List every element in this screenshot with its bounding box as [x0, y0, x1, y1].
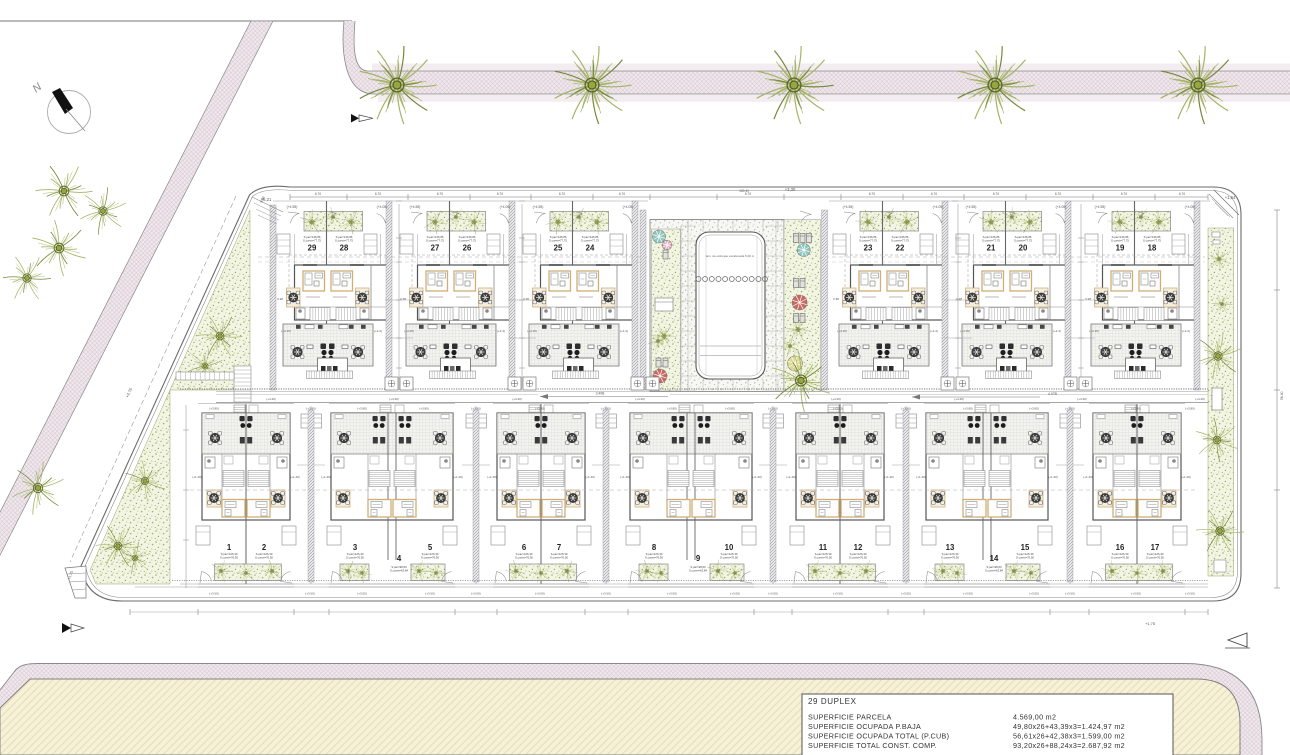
svg-text:6.70: 6.70 — [619, 192, 625, 196]
svg-text:(+3.80): (+3.80) — [963, 407, 973, 411]
svg-text:+1,75: +1,75 — [1145, 621, 1156, 626]
svg-text:(+4.15): (+4.15) — [404, 329, 414, 333]
svg-text:(+3.80): (+3.80) — [419, 407, 429, 411]
svg-text:(+3.00): (+3.00) — [209, 592, 219, 596]
svg-text:6.70: 6.70 — [993, 192, 999, 196]
svg-text:(+3.80): (+3.80) — [471, 407, 481, 411]
svg-text:S.const=76,50: S.const=76,50 — [1016, 555, 1034, 559]
svg-text:S.const=77,75: S.const=77,75 — [859, 238, 877, 242]
svg-text:(+1.40): (+1.40) — [290, 475, 300, 479]
svg-text:(+4.05): (+4.05) — [623, 205, 634, 209]
svg-text:10: 10 — [725, 543, 734, 552]
svg-text:4.569,00 m2: 4.569,00 m2 — [1013, 713, 1056, 722]
svg-text:5: 5 — [428, 543, 433, 552]
svg-text:(+4.55): (+4.55) — [1095, 205, 1106, 209]
svg-text:6.70: 6.70 — [375, 192, 381, 196]
svg-text:(+1.40): (+1.40) — [1181, 475, 1191, 479]
svg-text:(+4.15): (+4.15) — [281, 329, 291, 333]
svg-text:(+3.00): (+3.00) — [1185, 592, 1195, 596]
svg-text:0.38: 0.38 — [1085, 297, 1091, 301]
svg-text:S.const=77,75: S.const=77,75 — [891, 238, 909, 242]
svg-text:6.70: 6.70 — [559, 192, 565, 196]
svg-text:6: 6 — [522, 543, 527, 552]
svg-text:21: 21 — [987, 244, 996, 253]
svg-text:0.38: 0.38 — [277, 297, 283, 301]
svg-text:6.70: 6.70 — [437, 192, 443, 196]
svg-text:49,80x26+43,39x3=1.424,97 m2: 49,80x26+43,39x3=1.424,97 m2 — [1013, 722, 1125, 731]
svg-text:24: 24 — [586, 244, 595, 253]
svg-text:(+3.00): (+3.00) — [730, 592, 740, 596]
svg-text:6.70: 6.70 — [869, 192, 875, 196]
svg-text:(+3.00): (+3.00) — [963, 592, 973, 596]
svg-text:(+3.80): (+3.80) — [1185, 407, 1195, 411]
svg-text:(+1.40): (+1.40) — [1048, 475, 1058, 479]
svg-text:(+1.40): (+1.40) — [916, 475, 926, 479]
svg-text:(+4.15): (+4.15) — [1089, 329, 1099, 333]
svg-text:(+3.80): (+3.80) — [667, 407, 677, 411]
svg-text:(+3.80): (+3.80) — [357, 407, 367, 411]
svg-text:7: 7 — [557, 543, 561, 552]
svg-text:(+4.40): (+4.40) — [954, 397, 964, 401]
svg-text:S.const=77,75: S.const=77,75 — [303, 238, 321, 242]
svg-text:S.const=76,50: S.const=76,50 — [515, 555, 533, 559]
svg-text:(+3.80): (+3.80) — [901, 407, 911, 411]
svg-text:(+4.55): (+4.55) — [966, 205, 977, 209]
svg-text:(+4.4): (+4.4) — [1053, 329, 1061, 333]
svg-text:(+3.80): (+3.80) — [725, 407, 735, 411]
svg-text:(+4.40): (+4.40) — [831, 397, 841, 401]
svg-text:S.const=76,50: S.const=76,50 — [941, 555, 959, 559]
svg-text:(+1.40): (+1.40) — [585, 475, 595, 479]
svg-text:(+4.05): (+4.05) — [933, 205, 944, 209]
svg-text:(+3.00): (+3.00) — [601, 592, 611, 596]
svg-text:S.const=63,84: S.const=63,84 — [390, 568, 408, 572]
svg-text:2: 2 — [262, 543, 267, 552]
svg-text:(+1.40): (+1.40) — [1083, 475, 1093, 479]
svg-text:4: 4 — [397, 554, 402, 563]
svg-text:13: 13 — [946, 543, 955, 552]
svg-text:(+1.40): (+1.40) — [192, 475, 202, 479]
svg-text:S.const=77,75: S.const=77,75 — [549, 238, 567, 242]
svg-text:S.const=63,84: S.const=63,84 — [985, 568, 1003, 572]
svg-text:6.70: 6.70 — [1121, 192, 1127, 196]
svg-text:(+4.40): (+4.40) — [1077, 397, 1087, 401]
svg-text:3.40B: 3.40B — [596, 392, 606, 396]
svg-text:(+3.00): (+3.00) — [471, 592, 481, 596]
svg-text:SUPERFICIE TOTAL CONST. COM: SUPERFICIE TOTAL CONST. COMP. — [808, 741, 937, 750]
svg-text:(+3.00): (+3.00) — [425, 592, 435, 596]
svg-text:(+4.40): (+4.40) — [389, 397, 399, 401]
svg-text:17: 17 — [1151, 543, 1160, 552]
svg-text:(+3.00): (+3.00) — [833, 592, 843, 596]
svg-text:29: 29 — [308, 244, 317, 253]
svg-text:(+4.4): (+4.4) — [930, 329, 938, 333]
svg-text:SUPERFICIE OCUPADA P.BAJA: SUPERFICIE OCUPADA P.BAJA — [808, 722, 921, 731]
svg-text:1: 1 — [227, 543, 232, 552]
svg-text:(+1.40): (+1.40) — [487, 475, 497, 479]
svg-text:28: 28 — [340, 244, 349, 253]
svg-text:6.70: 6.70 — [931, 192, 937, 196]
svg-text:19: 19 — [1116, 244, 1125, 253]
svg-text:(+3.80): (+3.80) — [1029, 407, 1039, 411]
svg-text:(+3.80): (+3.80) — [833, 407, 843, 411]
svg-text:100.41: 100.41 — [739, 189, 749, 193]
svg-text:S.const=76,50: S.const=76,50 — [849, 555, 867, 559]
svg-text:S.const=63,84: S.const=63,84 — [689, 568, 707, 572]
svg-text:12: 12 — [854, 543, 863, 552]
svg-text:23: 23 — [864, 244, 873, 253]
svg-text:(+1.40): (+1.40) — [321, 475, 331, 479]
svg-text:0.38: 0.38 — [833, 297, 839, 301]
svg-text:S.const=77,75: S.const=77,75 — [458, 238, 476, 242]
svg-text:(+4.40): (+4.40) — [512, 397, 522, 401]
svg-text:lam. de estruque escalonada 5,: lam. de estruque escalonada 5,00 m — [706, 254, 755, 258]
svg-text:S.const=76,50: S.const=76,50 — [720, 555, 738, 559]
svg-text:S.const=77,75: S.const=77,75 — [426, 238, 444, 242]
svg-text:(+4.05): (+4.05) — [1056, 205, 1067, 209]
svg-text:SUPERFICIE PARCELA: SUPERFICIE PARCELA — [808, 713, 892, 722]
svg-text:S.const=77,75: S.const=77,75 — [1014, 238, 1032, 242]
svg-text:(+1.40): (+1.40) — [752, 475, 762, 479]
svg-text:6.70: 6.70 — [315, 192, 321, 196]
svg-text:+3,30: +3,30 — [785, 187, 796, 192]
svg-text:(+3.80): (+3.80) — [535, 407, 545, 411]
svg-text:S.const=76,50: S.const=76,50 — [255, 555, 273, 559]
svg-text:29 DUPLEX: 29 DUPLEX — [808, 697, 857, 706]
svg-text:(+3.00): (+3.00) — [667, 592, 677, 596]
svg-text:(+1.40): (+1.40) — [620, 475, 630, 479]
svg-text:25: 25 — [554, 244, 563, 253]
svg-text:15: 15 — [1021, 543, 1030, 552]
svg-text:8: 8 — [652, 543, 657, 552]
svg-text:(+3.80): (+3.80) — [306, 407, 316, 411]
svg-text:(+3.00): (+3.00) — [305, 592, 315, 596]
svg-text:(+3.80): (+3.80) — [768, 407, 778, 411]
svg-text:0.38: 0.38 — [523, 297, 529, 301]
svg-text:(+4.55): (+4.55) — [410, 205, 421, 209]
svg-text:(+4.4): (+4.4) — [620, 329, 628, 333]
svg-text:SUPERFICIE OCUPADA TOTAL (P: SUPERFICIE OCUPADA TOTAL (P.CUB) — [808, 732, 949, 741]
svg-text:22: 22 — [896, 244, 905, 253]
svg-text:16: 16 — [1116, 543, 1125, 552]
svg-text:11: 11 — [819, 543, 828, 552]
svg-text:0.38: 0.38 — [956, 297, 962, 301]
svg-text:(+3.00): (+3.00) — [1131, 592, 1141, 596]
svg-text:56.40: 56.40 — [1280, 391, 1284, 400]
svg-text:S.const=77,75: S.const=77,75 — [335, 238, 353, 242]
svg-text:93,20x26+88,24x3=2.687,92 m2: 93,20x26+88,24x3=2.687,92 m2 — [1013, 741, 1125, 750]
svg-text:(+3.00): (+3.00) — [768, 592, 778, 596]
svg-text:(+4.05): (+4.05) — [1185, 205, 1196, 209]
svg-text:(+4.15): (+4.15) — [837, 329, 847, 333]
svg-text:S.const=77,75: S.const=77,75 — [1143, 238, 1161, 242]
svg-text:(+4.55): (+4.55) — [287, 205, 298, 209]
svg-text:(+3.80): (+3.80) — [601, 407, 611, 411]
svg-text:(+3.00): (+3.00) — [1029, 592, 1039, 596]
svg-text:6.70: 6.70 — [497, 192, 503, 196]
svg-text:6.70: 6.70 — [1179, 192, 1185, 196]
svg-text:(+3.80): (+3.80) — [209, 407, 219, 411]
svg-text:S.const=76,50: S.const=76,50 — [645, 555, 663, 559]
svg-text:(+4.55): (+4.55) — [533, 205, 544, 209]
svg-text:S.const=76,50: S.const=76,50 — [1111, 555, 1129, 559]
svg-text:0.38: 0.38 — [400, 297, 406, 301]
svg-text:(+4.4): (+4.4) — [1182, 329, 1190, 333]
svg-text:(+3.80): (+3.80) — [1131, 407, 1141, 411]
svg-text:18: 18 — [1148, 244, 1157, 253]
svg-text:3: 3 — [353, 543, 358, 552]
svg-text:S.const=76,50: S.const=76,50 — [550, 555, 568, 559]
svg-text:(+4.05): (+4.05) — [500, 205, 511, 209]
svg-text:S.const=77,75: S.const=77,75 — [1111, 238, 1129, 242]
svg-text:9: 9 — [696, 554, 701, 563]
svg-text:(+3.00): (+3.00) — [357, 592, 367, 596]
svg-text:(+4.15): (+4.15) — [527, 329, 537, 333]
svg-text:(+4.05): (+4.05) — [377, 205, 388, 209]
svg-text:(+3.80): (+3.80) — [1065, 407, 1075, 411]
svg-text:(+4.55): (+4.55) — [843, 205, 854, 209]
svg-text:(+1.40): (+1.40) — [786, 475, 796, 479]
svg-text:(+4.40): (+4.40) — [266, 397, 276, 401]
svg-text:(+4.4): (+4.4) — [374, 329, 382, 333]
svg-text:14: 14 — [990, 554, 999, 563]
svg-text:4.07B: 4.07B — [1048, 392, 1058, 396]
svg-text:(+1.40): (+1.40) — [453, 475, 463, 479]
svg-text:(+4.15): (+4.15) — [960, 329, 970, 333]
svg-text:(+3.00): (+3.00) — [901, 592, 911, 596]
svg-text:6.70: 6.70 — [1055, 192, 1061, 196]
svg-text:(+4.40): (+4.40) — [635, 397, 645, 401]
svg-text:(+1.40): (+1.40) — [884, 475, 894, 479]
svg-text:(+4.4): (+4.4) — [497, 329, 505, 333]
svg-text:S.const=77,75: S.const=77,75 — [982, 238, 1000, 242]
svg-text:20: 20 — [1019, 244, 1028, 253]
svg-text:56,61x26+42,38x3=1.599,00 m2: 56,61x26+42,38x3=1.599,00 m2 — [1013, 732, 1125, 741]
svg-text:S.const=76,50: S.const=76,50 — [346, 555, 364, 559]
svg-text:(+3.00): (+3.00) — [535, 592, 545, 596]
svg-text:(+3.00): (+3.00) — [1065, 592, 1075, 596]
svg-text:S.const=76,50: S.const=76,50 — [1146, 555, 1164, 559]
svg-text:S.const=76,50: S.const=76,50 — [220, 555, 238, 559]
svg-text:S.const=77,75: S.const=77,75 — [581, 238, 599, 242]
svg-text:27: 27 — [431, 244, 440, 253]
svg-text:(+4.40): (+4.40) — [1195, 397, 1205, 401]
svg-text:26: 26 — [463, 244, 472, 253]
svg-text:S.const=76,50: S.const=76,50 — [421, 555, 439, 559]
svg-text:+1,64: +1,64 — [1225, 195, 1236, 200]
svg-text:S.const=76,50: S.const=76,50 — [814, 555, 832, 559]
